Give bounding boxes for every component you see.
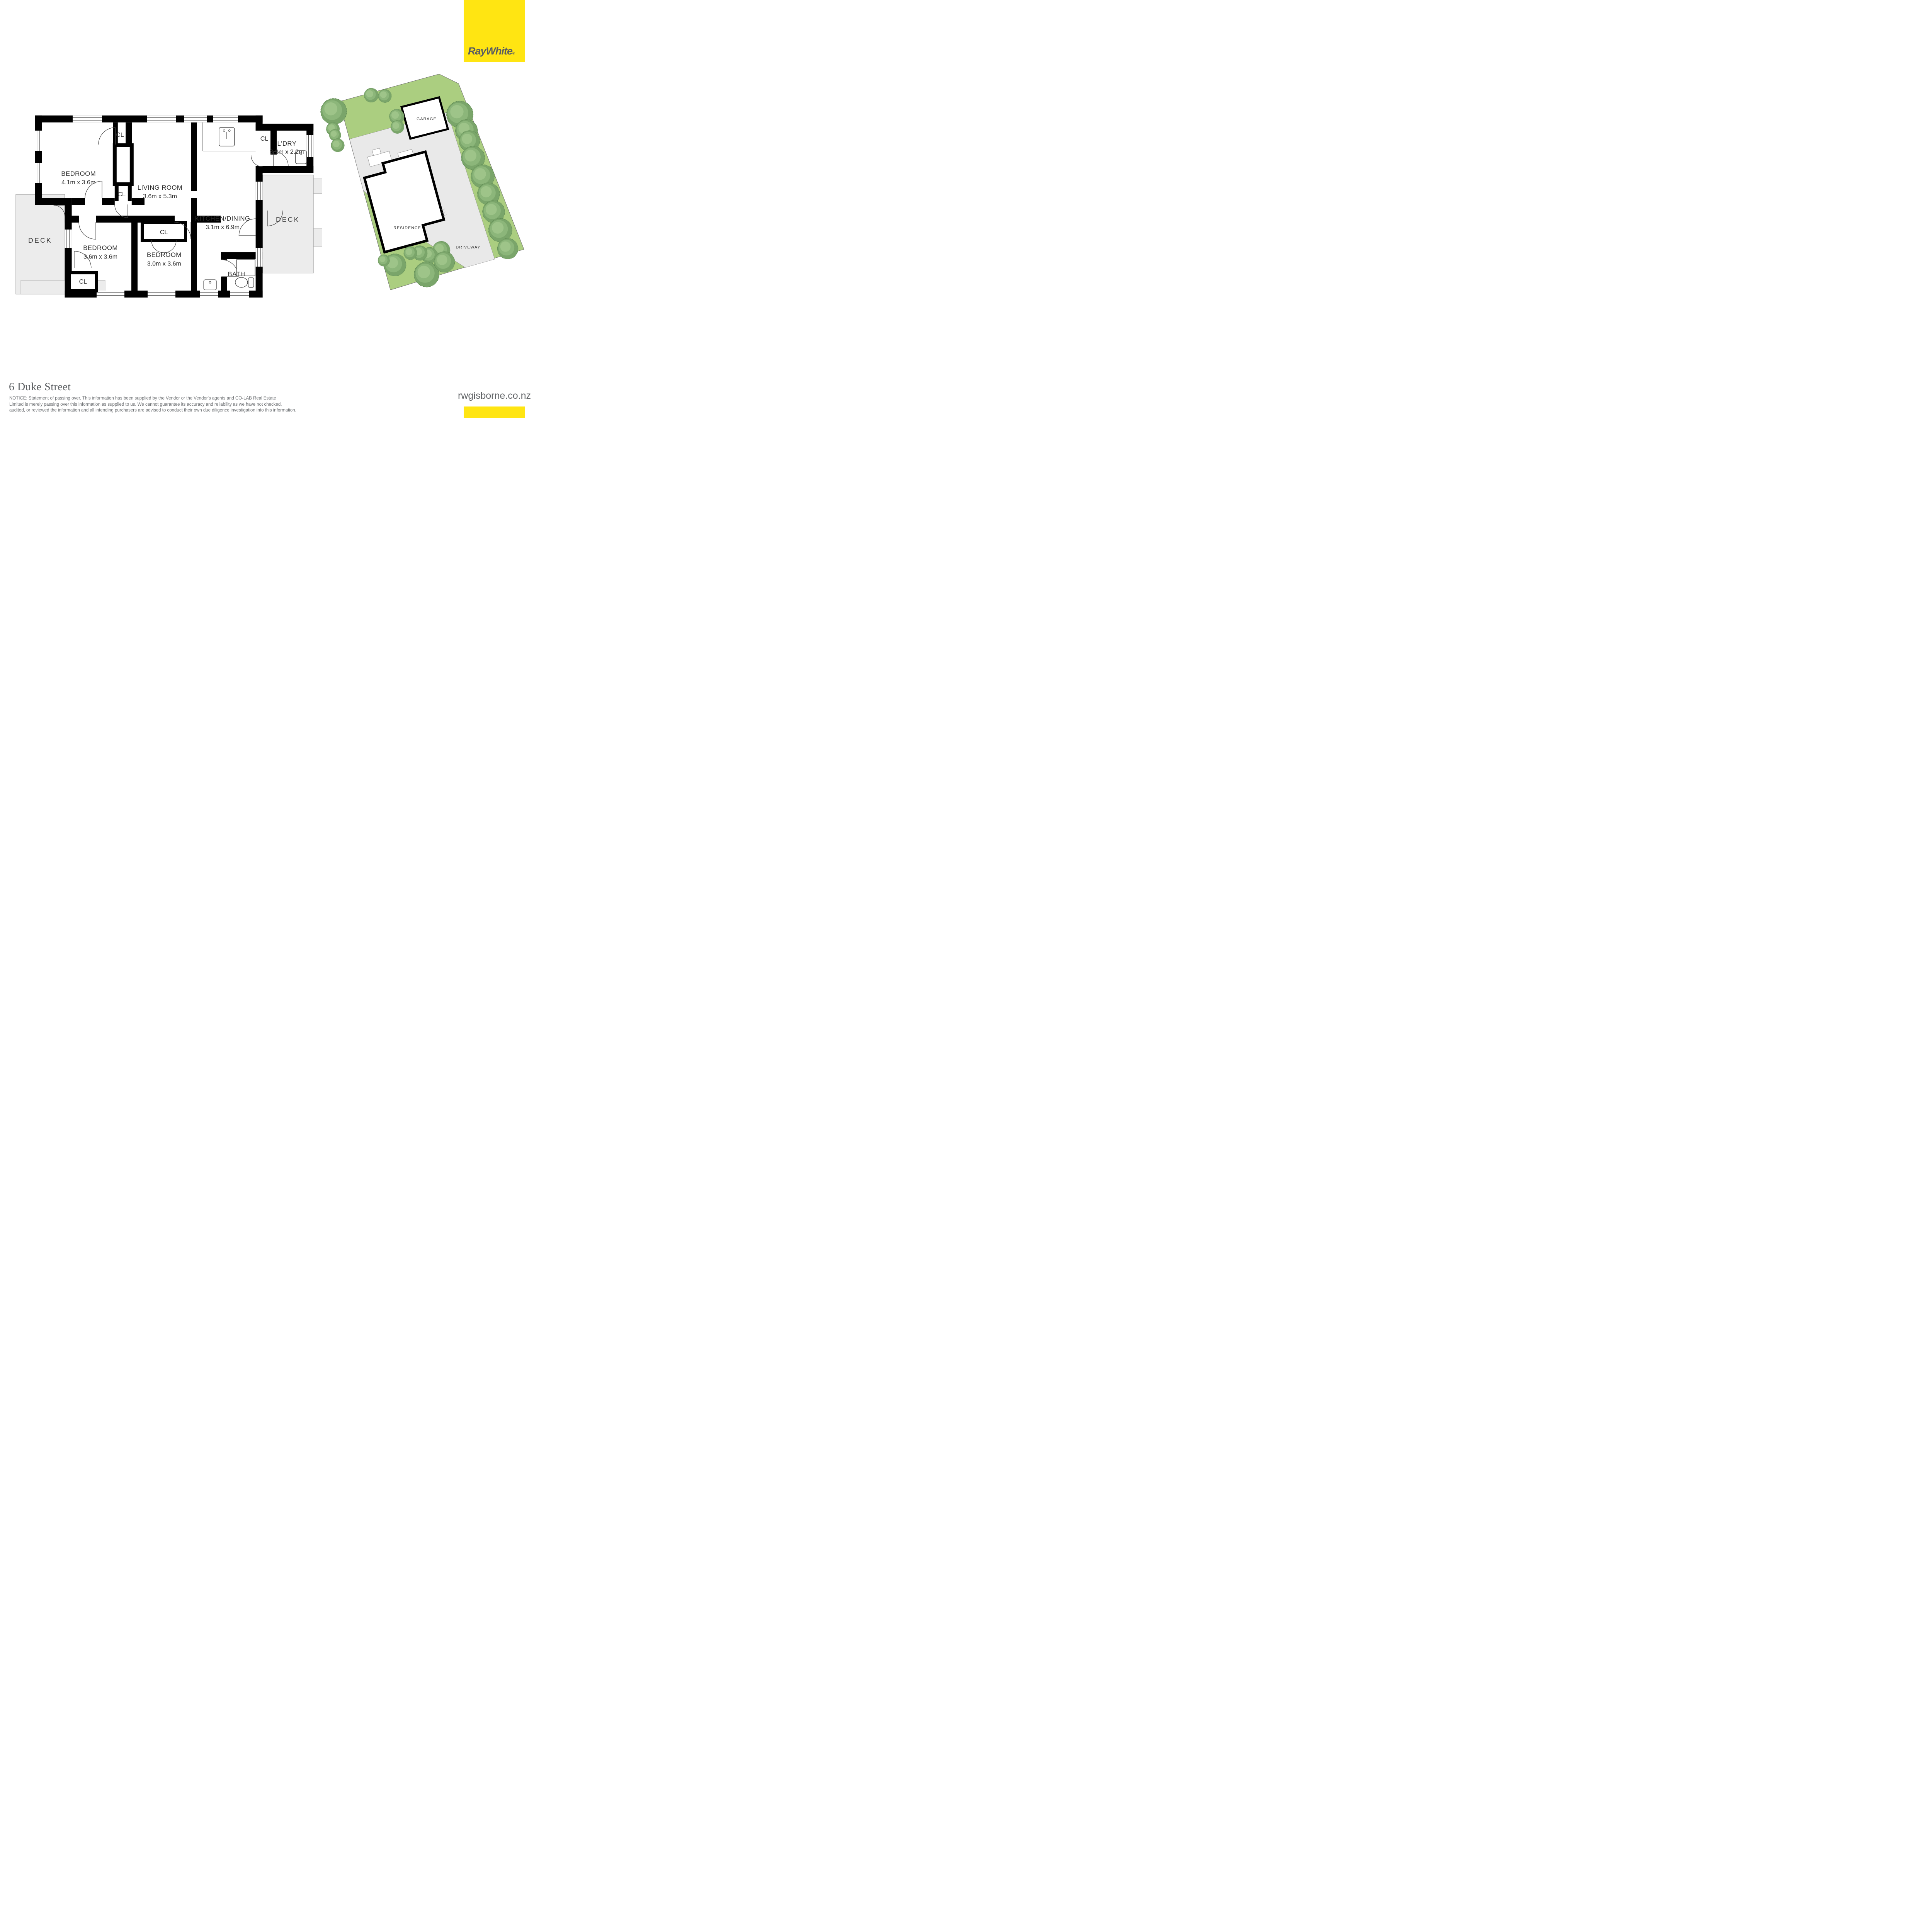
notice-text: NOTICE: Statement of passing over. This … — [9, 396, 296, 414]
deck-label-right: DECK — [276, 216, 300, 223]
room-label-bedroom3: BEDROOM — [147, 251, 182, 259]
window-top-living-1 — [147, 116, 176, 122]
room-dims-ldry: 3.3m x 2.2m — [270, 149, 304, 155]
page: RayWhite® — [0, 0, 541, 418]
deck-label-left: DECK — [28, 236, 52, 244]
residence-label: RESIDENCE — [393, 226, 421, 230]
toilet-bowl — [235, 277, 248, 287]
closet-label-1: CL — [116, 132, 124, 138]
window-left-bedroom1-b — [35, 163, 42, 183]
notice-line-2: Limited is merely passing over this info… — [9, 402, 296, 408]
garage-label: GARAGE — [417, 117, 437, 121]
window-left-bedroom1-a — [35, 131, 42, 151]
room-dims-bedroom3: 3.0m x 3.6m — [147, 261, 181, 267]
room-label-ldry: L'DRY — [277, 140, 297, 147]
room-dims-living: 3.6m x 5.3m — [143, 193, 177, 200]
room-dims-kitchen: 3.1m x 6.9m — [206, 224, 240, 231]
driveway-label: DRIVEWAY — [456, 245, 481, 250]
website-link: rwgisborne.co.nz — [458, 390, 531, 401]
closet-label-4: CL — [160, 229, 168, 236]
room-dims-bedroom1: 4.1m x 3.6m — [61, 179, 95, 186]
closet-label-5: CL — [79, 279, 87, 285]
room-label-bath: BATH — [228, 270, 245, 278]
window-ldry-right — [306, 135, 313, 157]
window-top-bedroom1 — [73, 116, 102, 122]
room-dims-bedroom2: 3.6m x 3.6m — [83, 254, 117, 260]
window-bottom-bedroom2 — [97, 291, 124, 298]
registered-mark-icon: ® — [512, 51, 515, 55]
room-label-living: LIVING ROOM — [138, 184, 182, 191]
raywhite-logo: RayWhite® — [464, 0, 525, 62]
notice-line-3: audited, or reviewed the information and… — [9, 408, 296, 414]
window-kitchen-deck — [256, 182, 263, 200]
raywhite-logo-text: RayWhite® — [468, 45, 515, 57]
room-label-bedroom2: BEDROOM — [83, 244, 118, 252]
window-left-bedroom2 — [65, 230, 72, 248]
site-plan: GARAGE RESIDENCE DRIVEWAY — [313, 66, 541, 336]
bottom-yellow-block — [464, 406, 525, 418]
toilet-tank — [248, 278, 253, 287]
window-bottom-bedroom3 — [148, 291, 175, 298]
page-title: 6 Duke Street — [9, 381, 71, 393]
window-top-living-2 — [184, 116, 207, 122]
floor-plan: BEDROOM 4.1m x 3.6m LIVING ROOM 3.6m x 5… — [8, 112, 325, 298]
room-label-kitchen: KITCHEN/DINING — [195, 215, 250, 222]
closet-label-3: CL — [260, 136, 269, 142]
window-bottom-bath — [230, 291, 249, 298]
room-label-bedroom1: BEDROOM — [61, 170, 96, 177]
window-bottom-nook — [200, 291, 218, 298]
closet-label-2: CL — [118, 191, 126, 198]
window-top-kitchen — [213, 116, 238, 122]
notice-line-1: NOTICE: Statement of passing over. This … — [9, 396, 296, 402]
window-bath-deck — [256, 248, 263, 267]
